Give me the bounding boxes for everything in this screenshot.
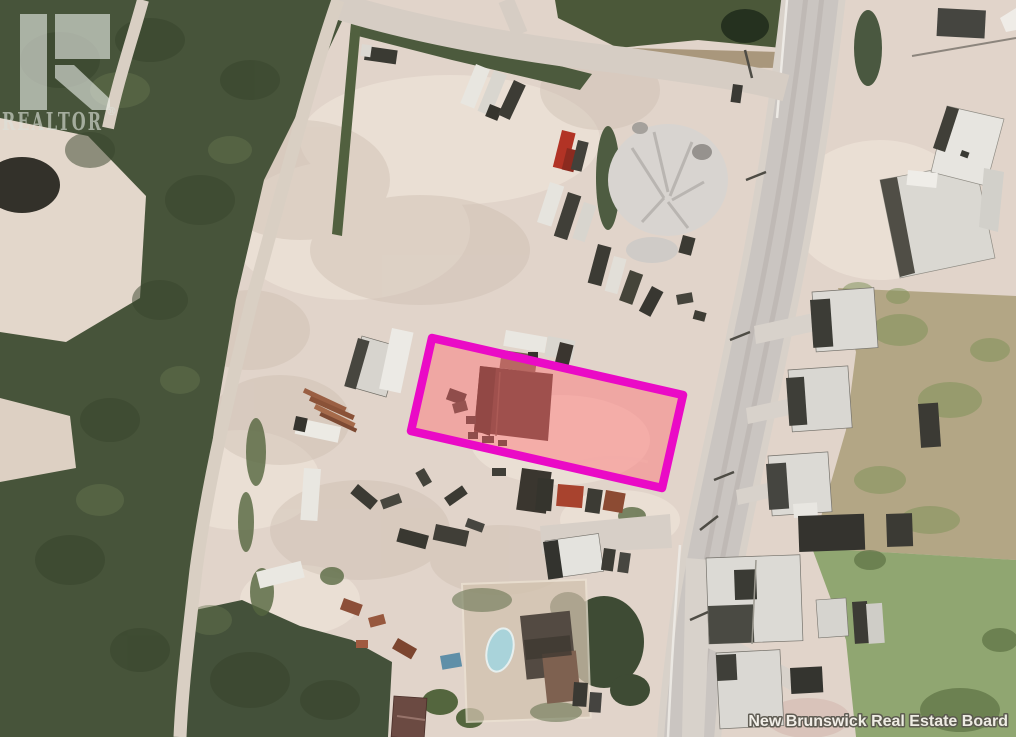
registered-trademark-symbol: ®: [106, 105, 120, 118]
dark-shed-2: [886, 513, 913, 547]
house-3-dark-section: [766, 463, 789, 510]
shed-top-right: [937, 8, 986, 38]
house-1-dark-section: [810, 299, 833, 348]
realtor-watermark-text: REALTOR: [2, 107, 103, 136]
industrial-building-connector: [906, 170, 937, 188]
house-6-garage: [790, 666, 823, 694]
house-6-dark-section: [716, 654, 737, 681]
tree-right-of-road: [854, 10, 882, 86]
house-2-dark-section: [786, 377, 807, 426]
dark-pond-blob: [721, 9, 769, 43]
long-dark-building: [798, 514, 865, 552]
shed-5a-roof: [816, 598, 849, 638]
rust-truck: [556, 484, 584, 508]
yard-weeds-a: [452, 588, 512, 612]
aerial-photo: REALTOR ® New Brunswick Real Estate Boar…: [0, 0, 1016, 737]
maroon-shed-roof: [391, 696, 427, 737]
attribution-text: New Brunswick Real Estate Board: [748, 713, 1008, 730]
house-4-dark-b: [708, 604, 754, 644]
shed-5b-light: [866, 603, 885, 644]
dark-shed-east: [918, 403, 941, 448]
